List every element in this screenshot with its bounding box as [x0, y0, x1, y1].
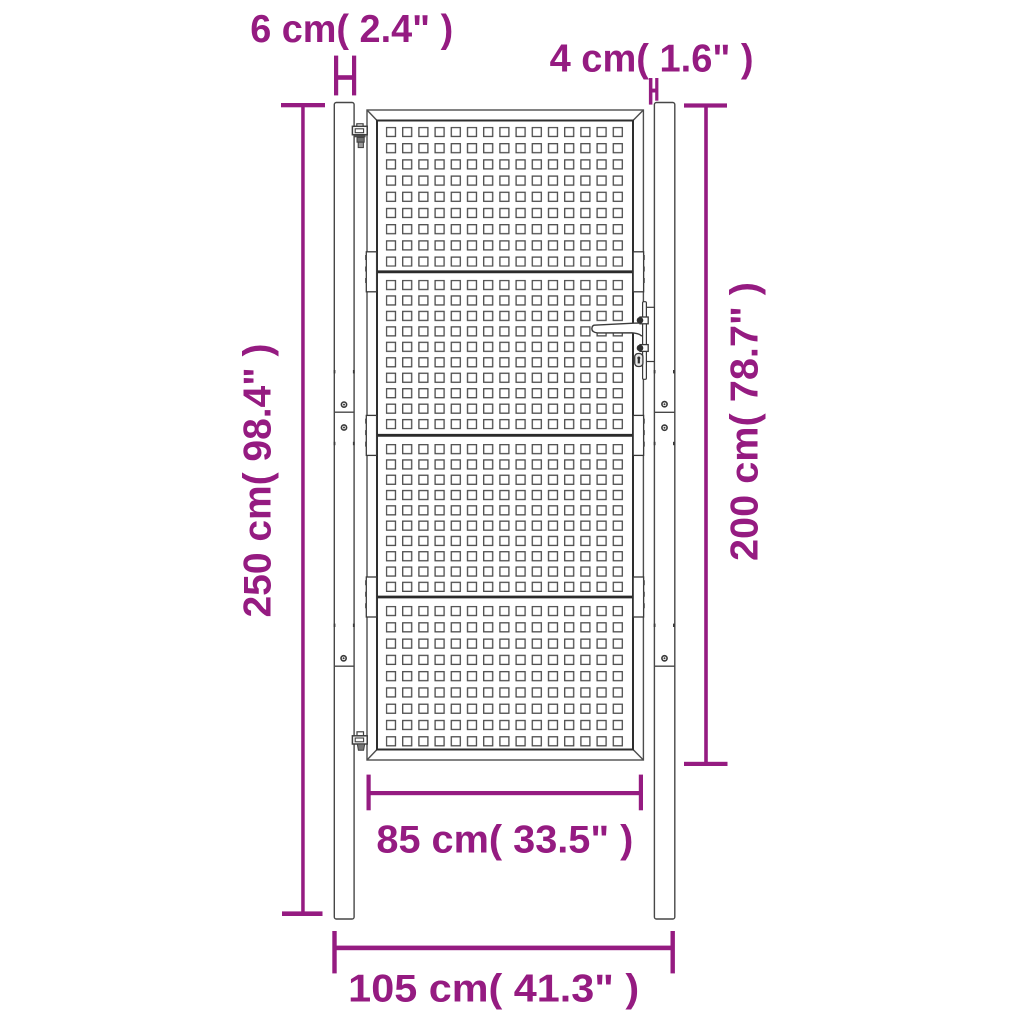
- svg-text:85 cm( 33.5" ): 85 cm( 33.5" ): [376, 818, 633, 861]
- svg-text:6 cm( 2.4" ): 6 cm( 2.4" ): [250, 8, 453, 51]
- svg-text:250 cm( 98.4" ): 250 cm( 98.4" ): [237, 344, 280, 618]
- svg-text:105 cm( 41.3" ): 105 cm( 41.3" ): [348, 968, 639, 1011]
- svg-text:4 cm( 1.6" ): 4 cm( 1.6" ): [550, 37, 754, 80]
- svg-text:200 cm( 78.7" ): 200 cm( 78.7" ): [724, 282, 767, 561]
